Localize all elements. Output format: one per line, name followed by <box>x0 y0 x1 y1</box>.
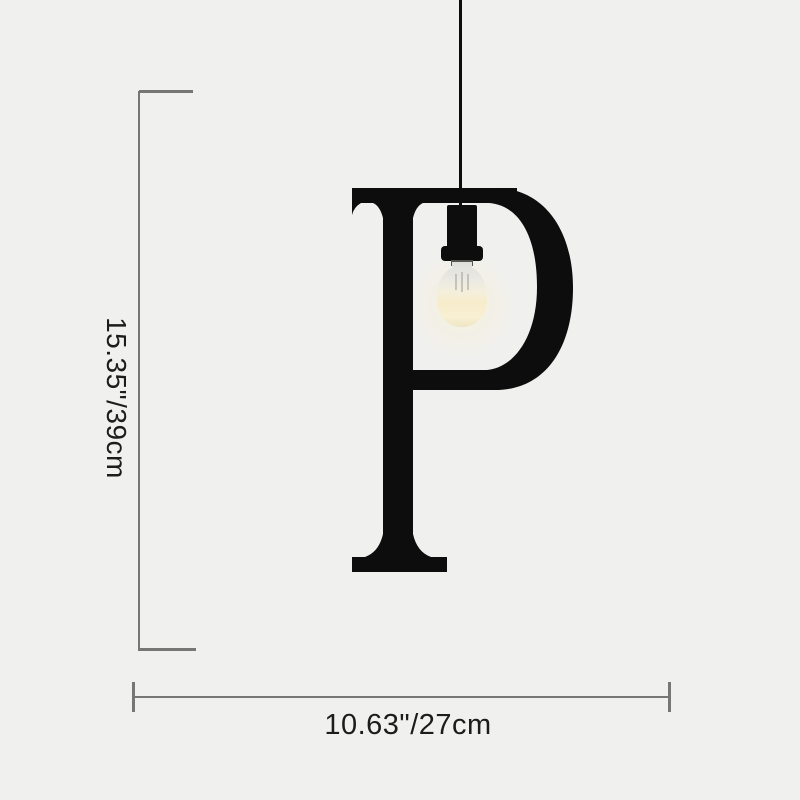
height-dim-line <box>138 91 140 651</box>
height-dim-tick-top <box>139 90 193 93</box>
product-stage: 15.35"/39cm 10.63"/27cm <box>0 0 800 800</box>
width-dim-tick-right <box>668 682 671 712</box>
height-dim-label: 15.35"/39cm <box>101 288 131 508</box>
height-dim-tick-bottom <box>139 648 196 651</box>
width-dim-label: 10.63"/27cm <box>258 710 558 740</box>
bulb-socket <box>441 205 483 266</box>
light-bulb <box>437 262 487 327</box>
pendant-cord <box>459 0 462 214</box>
width-dim-line <box>133 696 671 698</box>
width-dim-tick-left <box>132 682 135 712</box>
letter-p-lamp <box>351 188 573 572</box>
